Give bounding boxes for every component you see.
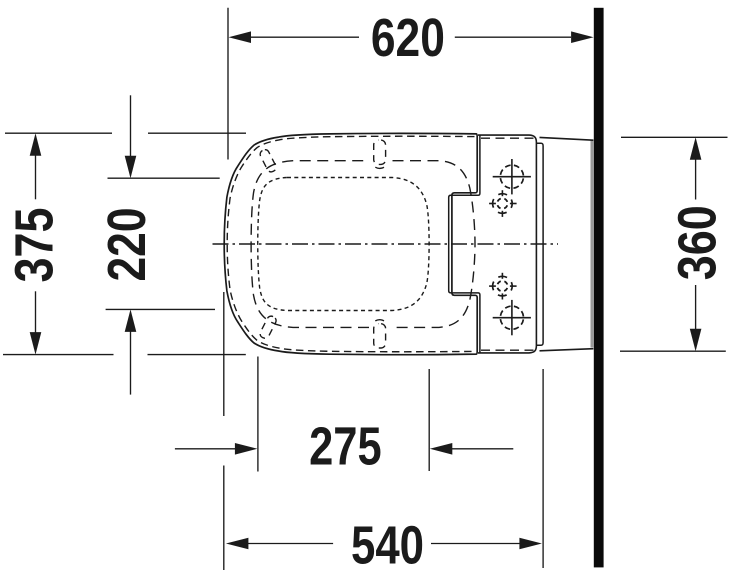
svg-text:220: 220: [98, 208, 157, 282]
svg-text:375: 375: [6, 208, 65, 283]
svg-text:360: 360: [669, 205, 728, 280]
svg-text:540: 540: [351, 516, 424, 575]
svg-text:275: 275: [309, 418, 382, 477]
svg-text:620: 620: [371, 9, 445, 68]
